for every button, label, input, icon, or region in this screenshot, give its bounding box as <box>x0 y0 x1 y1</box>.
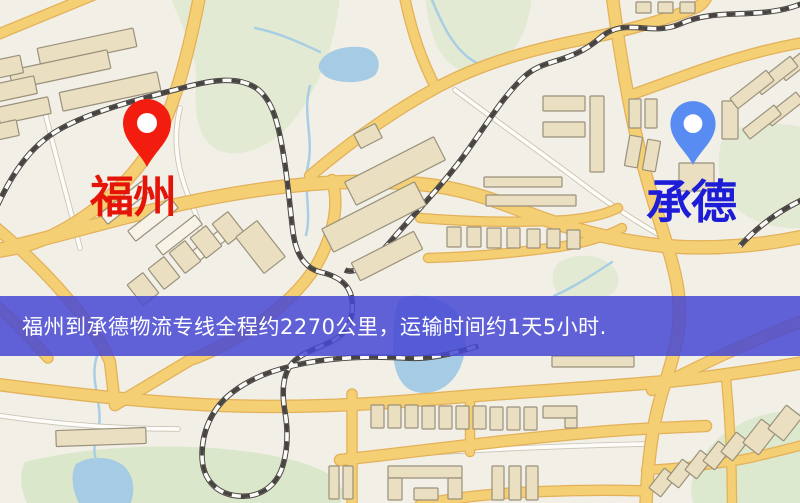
building <box>490 407 503 430</box>
label-chengde: 承德 <box>646 179 736 225</box>
building <box>388 466 462 478</box>
map-canvas <box>0 0 800 503</box>
building <box>658 2 673 13</box>
info-banner: 福州到承德物流专线全程约2270公里，运输时间约1天5小时. <box>0 296 800 356</box>
building <box>487 228 501 248</box>
building <box>439 406 452 429</box>
building <box>509 466 521 500</box>
label-fuzhou: 福州 <box>90 176 176 220</box>
building <box>524 407 537 430</box>
building <box>527 229 540 248</box>
building <box>388 405 401 428</box>
building <box>680 2 695 13</box>
building <box>414 488 438 500</box>
building <box>56 427 147 446</box>
building <box>590 96 604 172</box>
building <box>543 406 577 418</box>
building <box>473 406 486 429</box>
building <box>507 407 520 430</box>
building <box>467 227 481 247</box>
building <box>405 405 418 428</box>
building <box>448 478 462 499</box>
building <box>543 122 585 137</box>
building <box>456 406 469 429</box>
building <box>565 418 577 428</box>
banner-text: 福州到承德物流专线全程约2270公里，运输时间约1天5小时. <box>0 311 607 341</box>
building <box>343 466 353 499</box>
building <box>388 478 402 500</box>
building <box>447 227 461 247</box>
building <box>486 195 576 206</box>
building <box>422 406 435 429</box>
building <box>507 228 520 248</box>
map-screenshot: 福州 承德 福州到承德物流专线全程约2270公里，运输时间约1天5小时. <box>0 0 800 503</box>
building <box>543 96 585 111</box>
building <box>567 230 580 249</box>
building <box>484 177 562 187</box>
pin-chengde-hole <box>684 114 703 133</box>
building <box>636 2 651 13</box>
building <box>645 99 657 128</box>
building <box>492 466 504 500</box>
building <box>371 405 384 428</box>
building <box>547 229 560 248</box>
building <box>526 466 538 500</box>
building <box>329 466 339 499</box>
pin-fuzhou-hole <box>137 113 157 133</box>
building <box>629 99 641 128</box>
building <box>552 356 634 367</box>
